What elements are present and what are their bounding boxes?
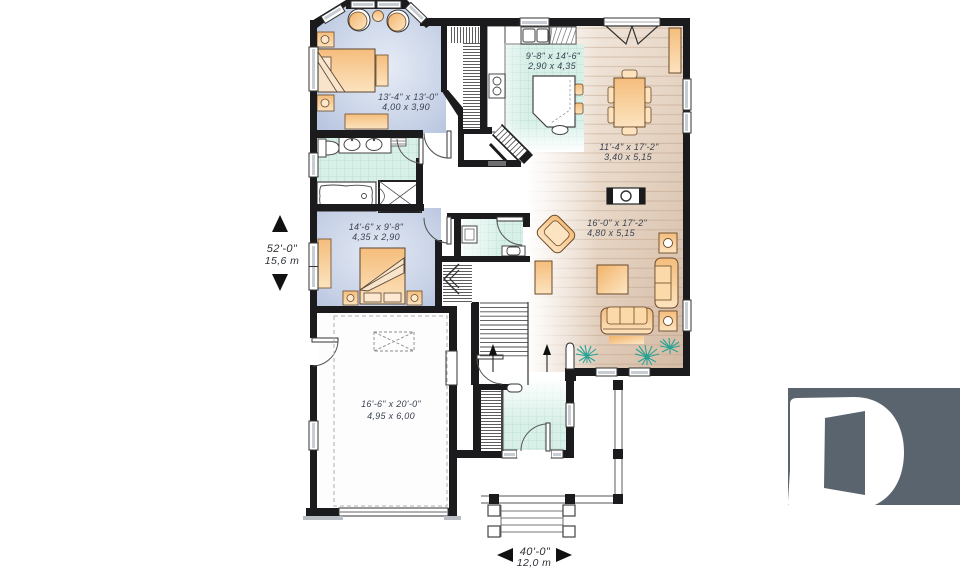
svg-text:16'-6" x 20'-0": 16'-6" x 20'-0" xyxy=(361,399,421,409)
svg-text:52'-0": 52'-0" xyxy=(267,243,298,255)
svg-text:15,6 m: 15,6 m xyxy=(265,255,300,267)
svg-text:12,0 m: 12,0 m xyxy=(517,557,552,569)
svg-text:14'-6" x 9'-8": 14'-6" x 9'-8" xyxy=(349,222,404,232)
svg-text:2,90 x 4,35: 2,90 x 4,35 xyxy=(527,61,577,71)
svg-text:3,40 x 5,15: 3,40 x 5,15 xyxy=(604,152,653,162)
svg-text:4,80 x 5,15: 4,80 x 5,15 xyxy=(587,228,636,238)
svg-text:4,00 x 3,90: 4,00 x 3,90 xyxy=(382,102,430,112)
svg-text:4,95 x 6,00: 4,95 x 6,00 xyxy=(367,411,415,421)
svg-text:11'-4" x 17'-2": 11'-4" x 17'-2" xyxy=(599,142,659,152)
svg-text:9'-8" x 14'-6": 9'-8" x 14'-6" xyxy=(526,51,581,61)
svg-text:13'-4" x 13'-0": 13'-4" x 13'-0" xyxy=(378,92,438,102)
svg-text:4,35 x 2,90: 4,35 x 2,90 xyxy=(352,232,400,242)
svg-text:16'-0" x 17'-2": 16'-0" x 17'-2" xyxy=(587,218,647,228)
